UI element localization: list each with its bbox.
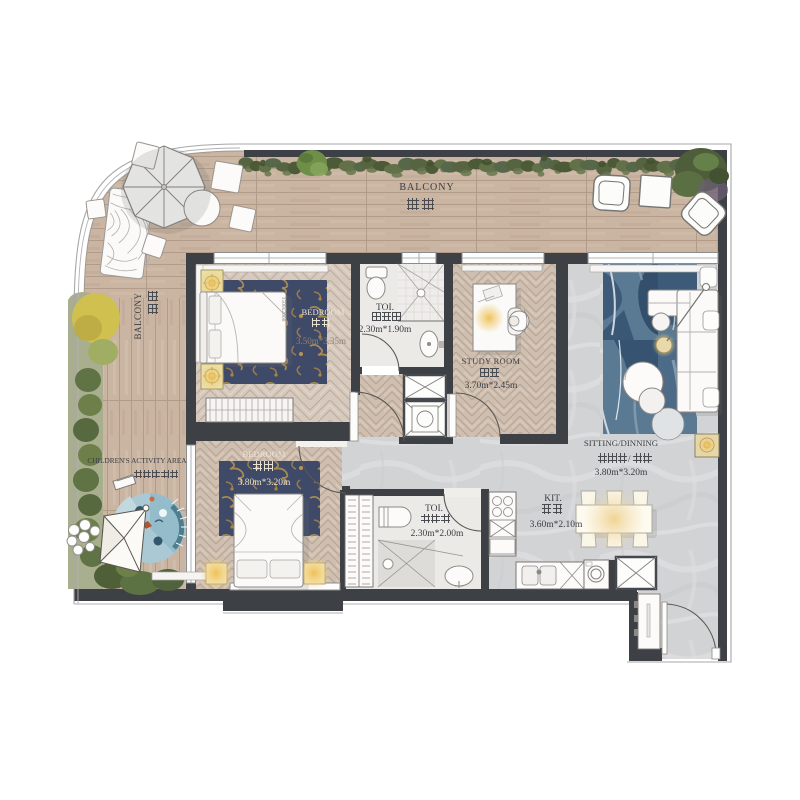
svg-text:CHILDREN'S ACTIVITY AREA: CHILDREN'S ACTIVITY AREA (87, 456, 187, 465)
svg-text:1500x2000: 1500x2000 (280, 297, 286, 322)
svg-text:2.30m*1.90m: 2.30m*1.90m (359, 325, 412, 335)
svg-text:BEDROOM: BEDROOM (302, 307, 345, 317)
svg-text:KIT.: KIT. (544, 494, 562, 504)
svg-text:3.80m*3.20m: 3.80m*3.20m (595, 468, 648, 478)
svg-text:3.50m*3.35m: 3.50m*3.35m (296, 336, 346, 346)
svg-text:BALCONY: BALCONY (399, 182, 454, 193)
svg-text:BALCONY: BALCONY (133, 292, 143, 339)
svg-text:3.80m*3.20m: 3.80m*3.20m (238, 478, 291, 488)
svg-text:BEDROOM: BEDROOM (243, 449, 286, 459)
svg-text:SITTING/DINNING: SITTING/DINNING (584, 438, 659, 448)
svg-text:3.70m*2.45m: 3.70m*2.45m (465, 381, 518, 391)
svg-text:TOI.: TOI. (425, 504, 443, 514)
svg-text:2.30m*2.00m: 2.30m*2.00m (411, 529, 464, 539)
svg-text:TOI.: TOI. (376, 303, 394, 313)
svg-text:STUDY ROOM: STUDY ROOM (462, 357, 521, 366)
svg-text:3.60m*2.10m: 3.60m*2.10m (530, 520, 583, 530)
